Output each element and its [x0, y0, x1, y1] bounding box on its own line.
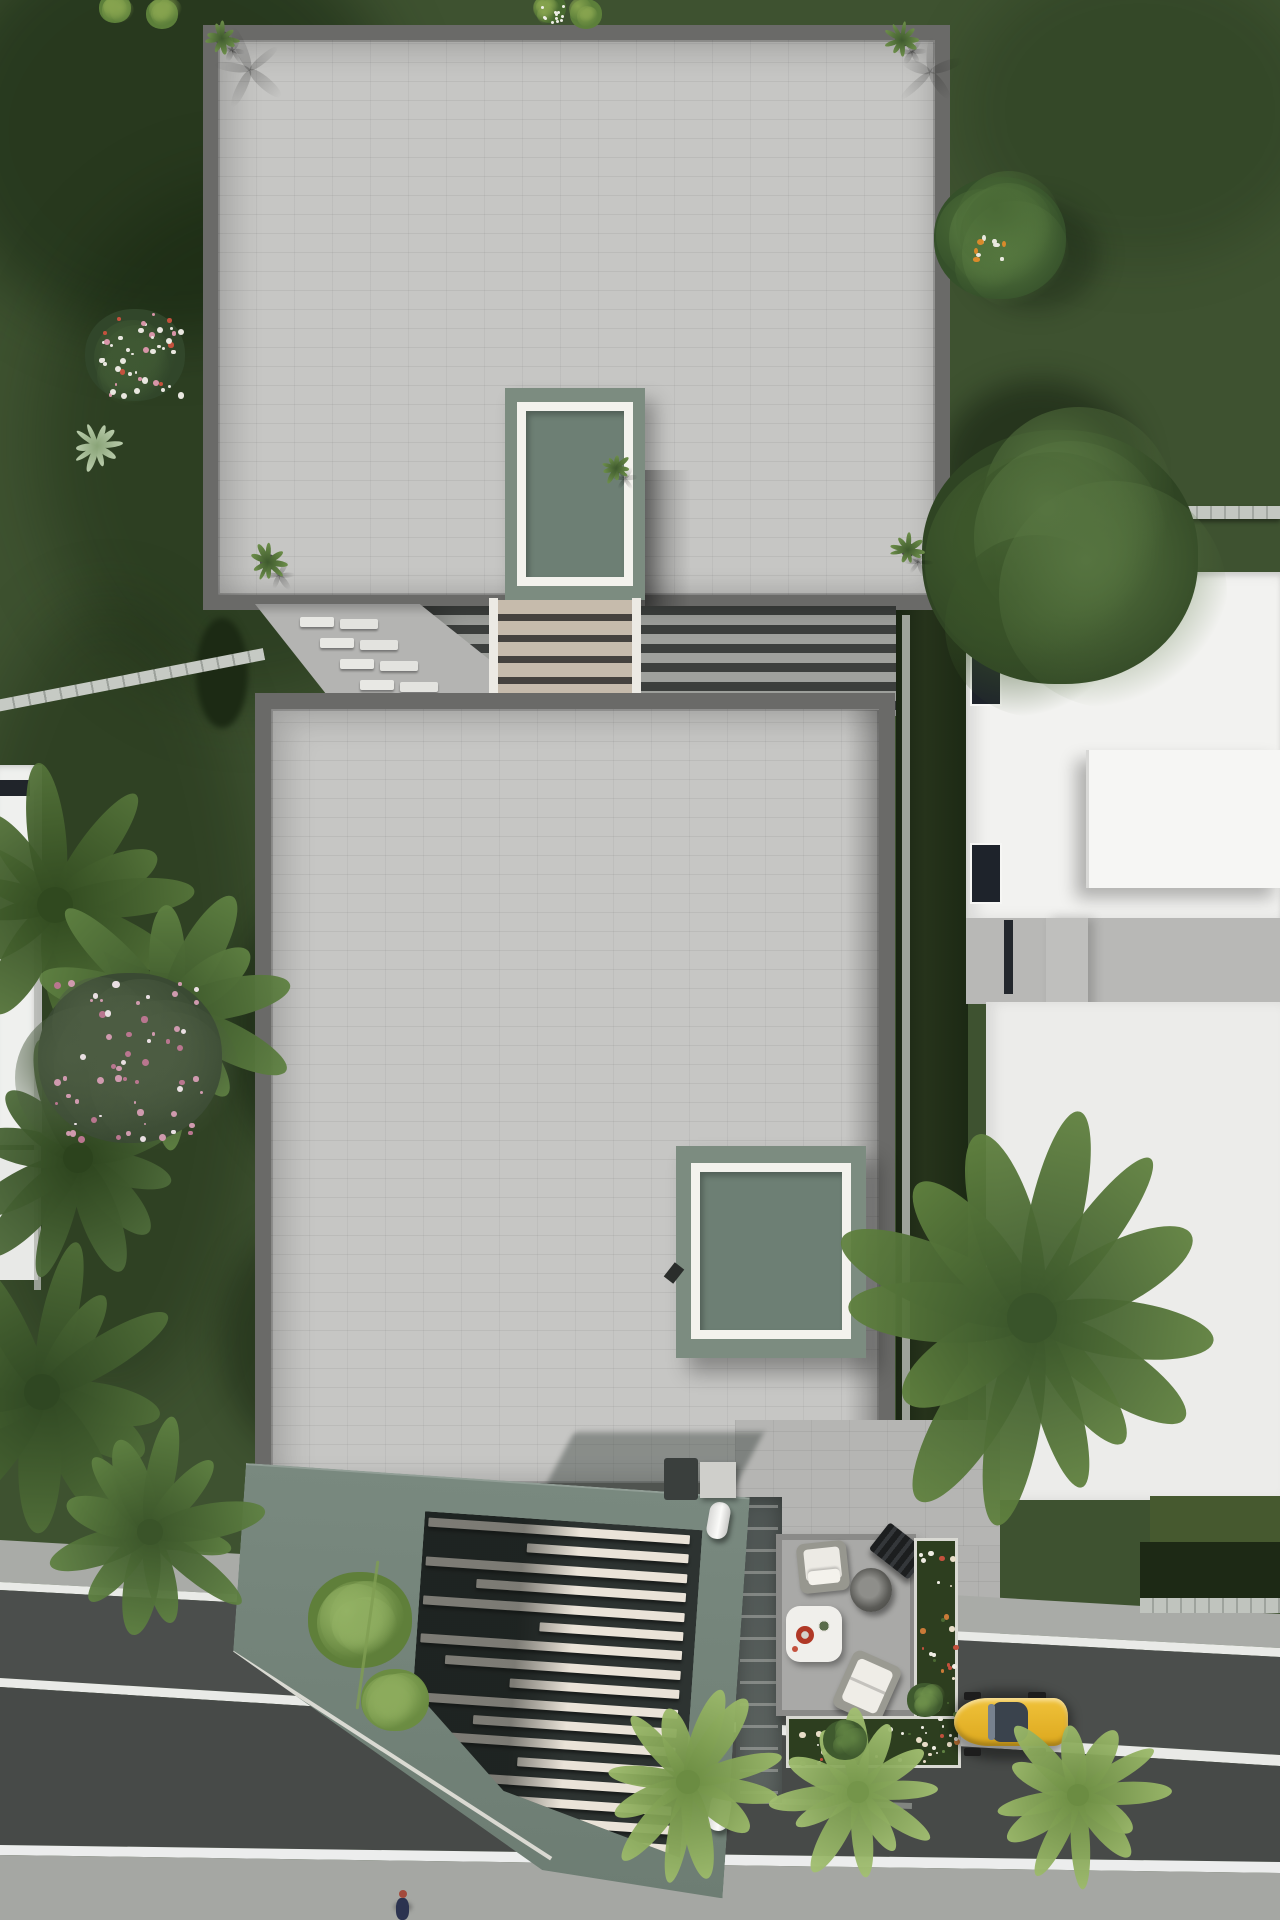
- pink-blossom: [194, 987, 199, 992]
- palm-center: [1007, 1293, 1056, 1342]
- pedestrian-head: [399, 1890, 407, 1898]
- pink-blossom: [66, 1131, 71, 1136]
- blossom-dot: [104, 339, 110, 345]
- orange-blossom: [973, 257, 979, 262]
- pink-blossom: [91, 1117, 97, 1123]
- pink-blossom: [166, 1039, 171, 1044]
- pink-blossom: [78, 1136, 85, 1143]
- blossom-dot: [157, 327, 163, 333]
- palm-center: [1067, 1784, 1089, 1806]
- pink-blossom: [137, 1109, 143, 1115]
- blossom-dot: [99, 358, 104, 363]
- pink-blossom: [179, 1080, 184, 1085]
- pink-blossom: [126, 1131, 131, 1136]
- orange-blossom: [1000, 257, 1003, 261]
- vegetation-layer: [0, 0, 1280, 1920]
- edge-shrub-flower: [561, 15, 564, 18]
- pink-blossom: [80, 1054, 86, 1060]
- vine-blob: [377, 1673, 427, 1723]
- edge-shrub-flower: [560, 19, 563, 22]
- orange-blossom: [977, 239, 984, 245]
- bed-bush-blob: [921, 1684, 946, 1709]
- pedestrian-body: [396, 1898, 409, 1920]
- pink-blossom: [136, 1001, 140, 1005]
- pink-blossom: [159, 1134, 166, 1141]
- blossom-dot: [117, 317, 121, 321]
- pink-blossom: [193, 1076, 198, 1081]
- pink-blossom: [115, 1075, 121, 1081]
- blossom-dot: [103, 331, 107, 335]
- palm-center: [847, 1781, 868, 1802]
- edge-shrub-blob: [580, 9, 593, 22]
- vine-blob: [317, 1584, 395, 1662]
- blossom-dot: [151, 336, 154, 339]
- blossom-dot: [142, 377, 148, 383]
- blossom-dot: [162, 347, 165, 350]
- orange-blossom: [1002, 241, 1006, 247]
- edge-shrub-flower: [541, 6, 544, 9]
- pedestrian: [392, 1886, 414, 1920]
- frond-shadow: [247, 44, 280, 73]
- blossom-dot: [178, 329, 184, 335]
- pink-blossom: [123, 1077, 127, 1081]
- blossom-dot: [120, 369, 126, 375]
- blossom-dot: [171, 350, 175, 354]
- blossom-dot: [103, 362, 107, 366]
- blossom-dot: [143, 347, 149, 353]
- big-tree-blob: [999, 481, 1227, 709]
- pink-blossom: [93, 993, 98, 998]
- pink-blossom: [178, 982, 182, 986]
- orange-blossom: [993, 243, 999, 248]
- blossom-dot: [120, 358, 126, 364]
- orange-blossom: [976, 253, 981, 257]
- pink-blossom: [152, 1032, 155, 1035]
- blossom-dot: [138, 328, 143, 333]
- blossom-dot: [118, 336, 122, 340]
- blossom-dot: [178, 392, 184, 398]
- blossom-dot: [131, 353, 134, 356]
- pink-tree-blob: [115, 1012, 227, 1124]
- edge-shrub-flower: [556, 20, 559, 23]
- palm-center: [676, 1770, 700, 1794]
- blossom-dot: [138, 377, 142, 381]
- edge-shrub-flower: [551, 21, 554, 24]
- pink-blossom: [175, 1027, 178, 1030]
- pink-blossom: [147, 1039, 151, 1043]
- blossom-dot: [110, 389, 116, 395]
- edge-shrub-blob: [153, 5, 171, 23]
- bed-bush-blob: [835, 1719, 855, 1739]
- blossom-dot: [167, 318, 172, 323]
- pink-blossom: [135, 1080, 139, 1084]
- pink-blossom: [141, 1016, 147, 1022]
- pink-blossom: [146, 995, 150, 999]
- blossom-dot: [159, 382, 163, 386]
- scene-canvas: [0, 0, 1280, 1920]
- small-tree-blob: [956, 171, 1061, 276]
- pink-blossom: [189, 1123, 194, 1128]
- pink-blossom: [66, 1094, 70, 1098]
- pink-blossom: [90, 999, 93, 1002]
- pink-blossom: [188, 1131, 192, 1135]
- blossom-dot: [161, 388, 165, 392]
- pink-blossom: [97, 1077, 104, 1084]
- frond-shadow: [228, 68, 255, 109]
- frond-shadow: [246, 66, 284, 101]
- blossom-dot: [153, 380, 159, 386]
- blossom-dot: [128, 372, 132, 376]
- pink-blossom: [134, 1101, 137, 1104]
